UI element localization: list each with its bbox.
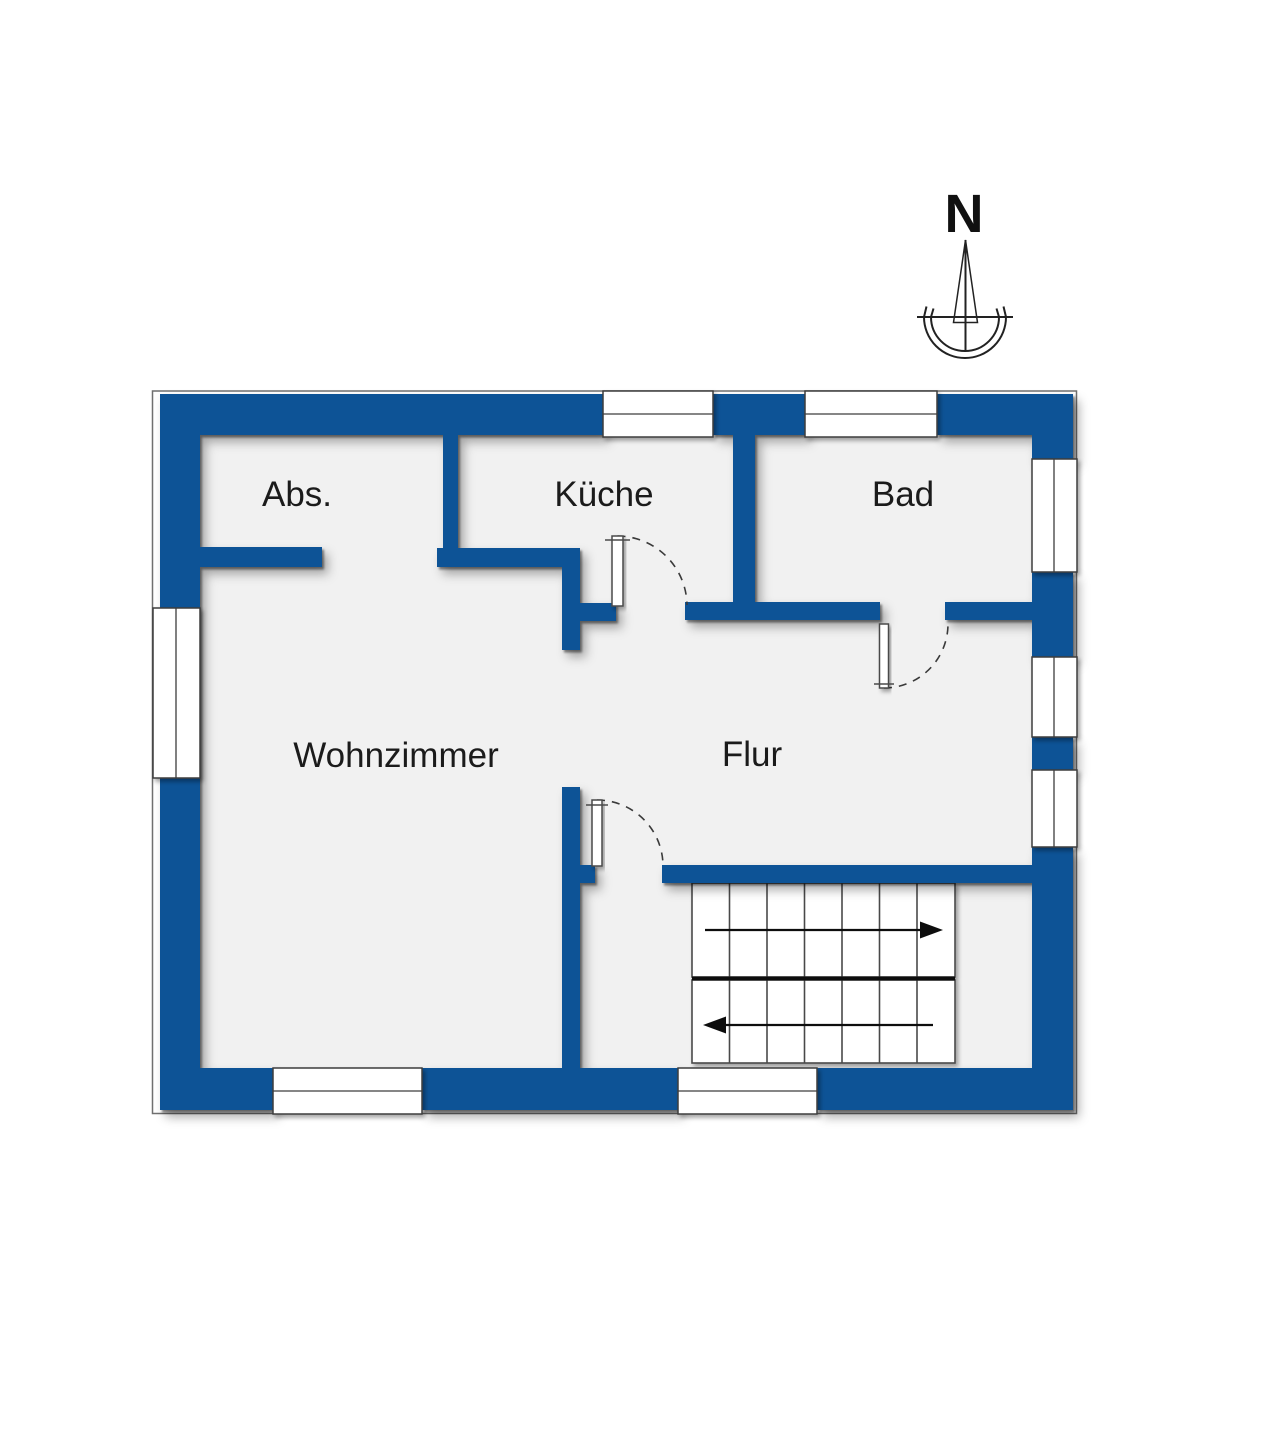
wall-outer-top-2 <box>713 394 805 435</box>
wall-kueche-bottom <box>437 548 563 567</box>
wall-outer-top-1 <box>160 394 603 435</box>
floor-plan-page: Abs. Küche Bad Wohnzimmer Flur N <box>0 0 1282 1440</box>
north-arrow-compass: N <box>917 184 1013 358</box>
wall-wohnzimmer-flur <box>562 787 580 1068</box>
window-bottom-2 <box>678 1068 817 1114</box>
stair-lower-flight <box>692 980 955 1063</box>
window-right-2 <box>1032 657 1077 737</box>
room-label-flur: Flur <box>722 735 783 774</box>
room-label-abs: Abs. <box>262 475 332 514</box>
staircase <box>692 883 955 1063</box>
window-right-1 <box>1032 459 1077 572</box>
wall-outer-right-3 <box>1032 737 1073 770</box>
room-label-kueche: Küche <box>554 475 653 514</box>
wall-kueche-left-vertical <box>562 548 580 650</box>
wall-abs-kueche <box>443 435 458 548</box>
room-label-wohnzimmer: Wohnzimmer <box>293 736 499 775</box>
floor-plan-svg: Abs. Küche Bad Wohnzimmer Flur N <box>0 0 1282 1440</box>
wall-kueche-door-stub <box>580 603 616 621</box>
window-top-1 <box>603 391 713 437</box>
wall-kueche-bad <box>733 435 755 620</box>
window-left-1 <box>153 608 200 778</box>
north-label: N <box>945 184 984 244</box>
wall-stair-door-stub <box>580 865 595 883</box>
wall-abs-bottom <box>200 547 322 567</box>
wall-outer-bottom-1 <box>160 1068 273 1110</box>
window-bottom-1 <box>273 1068 422 1114</box>
wall-bad-flur-left <box>685 602 880 620</box>
wall-stair-top <box>662 865 1032 883</box>
wall-outer-bottom-3 <box>817 1068 1073 1110</box>
wall-outer-bottom-2 <box>422 1068 678 1110</box>
wall-bad-flur-right <box>945 602 1032 620</box>
window-top-2 <box>805 391 937 437</box>
wall-outer-right-2 <box>1032 572 1073 657</box>
room-label-bad: Bad <box>872 475 934 514</box>
wall-outer-right-1 <box>1032 394 1073 459</box>
window-right-3 <box>1032 770 1077 847</box>
